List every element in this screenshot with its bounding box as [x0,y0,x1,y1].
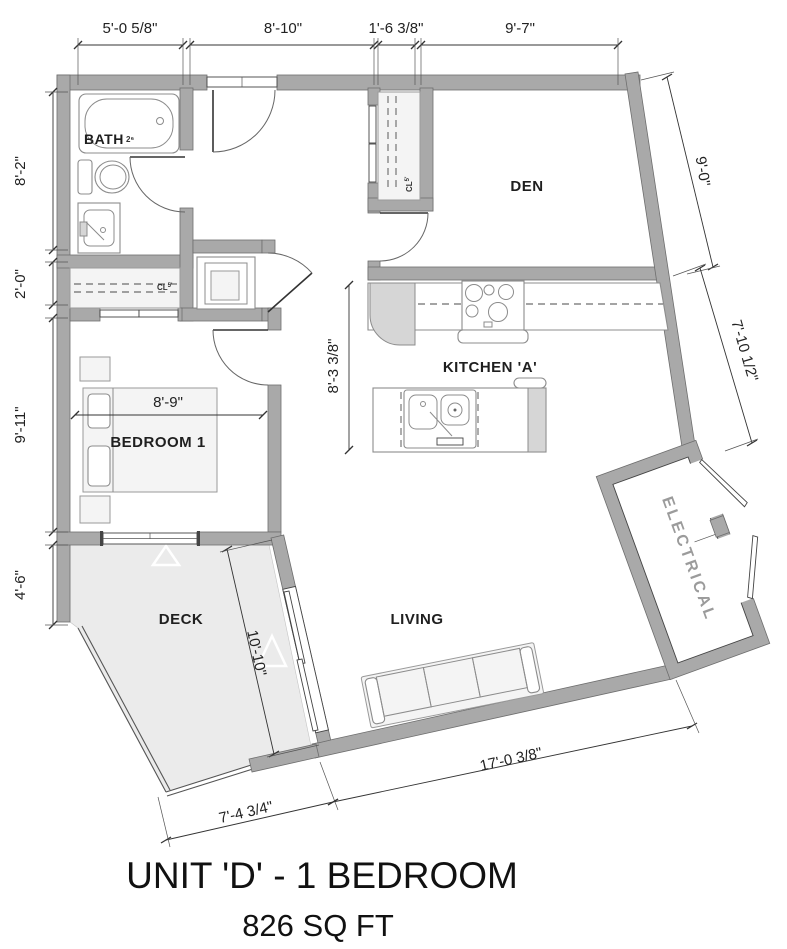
room-bath: BATH 2⁶ [78,94,179,253]
stove-front [458,330,528,343]
plan-area: 826 SQ FT [242,908,394,943]
den-label: DEN [510,178,543,195]
wall-segment [57,532,103,545]
window-jamb [197,531,200,546]
toilet-tank [78,160,92,194]
plan-title: UNIT 'D' - 1 BEDROOM [126,855,518,896]
window-jamb [100,531,103,546]
wall-segment [193,240,262,253]
wall-right-slanted [625,72,695,447]
wall-segment [70,308,100,321]
room-bedroom: BEDROOM 1 [80,357,217,523]
dim-label-deck-width: 7'-4 3/4" [217,798,274,827]
dim-label-bedroom-width: 8'-9" [153,394,183,411]
laundry-door-leaf [268,273,312,312]
entry-door-swing [213,90,275,152]
entry-opening [207,77,277,87]
dim-label-living-width: 17'-0 3/8" [478,744,543,774]
dim-label-top-3: 9'-7" [505,20,535,37]
bedroom-door-swing [213,330,268,385]
pillow [88,394,110,428]
closet-bifold-door [139,310,178,317]
bath-door-swing [130,157,185,212]
dim-label-right-0: 9'-0" [692,155,713,187]
den-closet-bifold-door [369,106,376,143]
bath-tag: 2⁶ [126,135,134,144]
disposal-center [454,409,457,412]
floor-plan-svg: BATH 2⁶ CL5' CL5' [0,0,787,949]
wall-segment [268,385,281,532]
dim-label-left-2: 9'-11" [12,406,29,443]
island-overhang [514,378,546,388]
dim-label-right-1: 7'-10 1/2" [727,318,761,383]
wall-segment [180,308,262,321]
laundry-closet [197,257,255,309]
living-label: LIVING [390,611,443,628]
den-closet-bifold-door [369,144,376,182]
bedroom-window [100,531,200,546]
den-door-swing [380,213,428,261]
wall-segment [57,255,193,268]
wall-segment [180,88,193,150]
deck-label: DECK [159,611,204,628]
counter-end-cabinet [370,283,415,345]
washer-dryer-inner [211,271,239,300]
dim-label-top-0: 5'-0 5/8" [103,20,158,37]
pillow [88,446,110,486]
room-electrical: ELECTRICAL [596,431,787,679]
wall-segment [197,532,281,545]
dim-label-kitchen-depth: 8'-3 3/8" [325,339,342,394]
wall-segment [420,88,433,211]
dim-label-left-3: 4'-6" [12,570,29,600]
wall-segment [368,267,660,280]
wall-segment [277,75,640,90]
nightstand [80,496,110,523]
vanity-faucet [80,222,87,236]
bath-label: BATH [84,131,124,147]
closet-bifold-door [100,310,139,317]
dim-label-top-1: 8'-10" [264,20,302,37]
wall-segment [180,208,193,321]
kitchen-label: KITCHEN 'A' [443,359,537,376]
faucet-base [437,438,463,445]
wall-segment [178,308,182,321]
nightstand [80,357,110,381]
dim-label-top-2: 1'-6 3/8" [369,20,424,37]
dim-label-left-0: 8'-2" [12,156,29,186]
dim-label-left-1: 2'-0" [12,269,29,299]
bedroom-label: BEDROOM 1 [110,434,205,451]
floor-plan-page: BATH 2⁶ CL5' CL5' [0,0,787,949]
island-end-cap [528,388,546,452]
laundry-door-swing [268,253,312,273]
wall-segment [262,240,275,253]
